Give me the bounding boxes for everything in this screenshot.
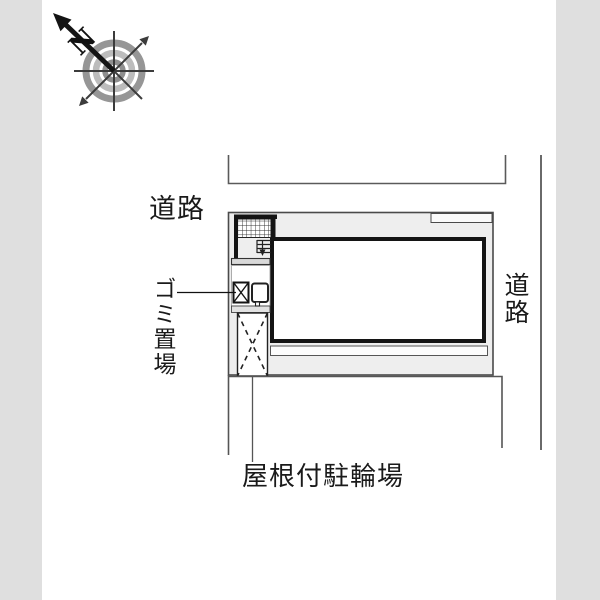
balcony-strip [271, 346, 488, 356]
road-top-label: 道路 [149, 196, 205, 223]
stair-wall-top [234, 215, 277, 220]
roof-notch [431, 214, 492, 223]
stair-wall-right [271, 215, 276, 242]
bottom-site-boundary [229, 377, 503, 449]
main-building-outline [272, 239, 484, 341]
equipment-box-tab [256, 302, 260, 306]
top-lot-boundary [229, 155, 506, 184]
site-plan-page: N 道路 道路 ゴミ置場 屋根付駐輪場 [0, 0, 600, 600]
stair-hatch [236, 219, 272, 238]
road-right-label: 道路 [502, 272, 527, 326]
partition-wall-band [232, 259, 271, 265]
equipment-box [252, 284, 268, 303]
covered-bicycle-parking-label: 屋根付駐輪場 [242, 463, 404, 489]
compass-rose: N [53, 13, 154, 111]
lower-partition-band [232, 306, 271, 313]
garbage-area-label: ゴミ置場 [151, 277, 174, 377]
stair-wall-left [234, 219, 238, 261]
